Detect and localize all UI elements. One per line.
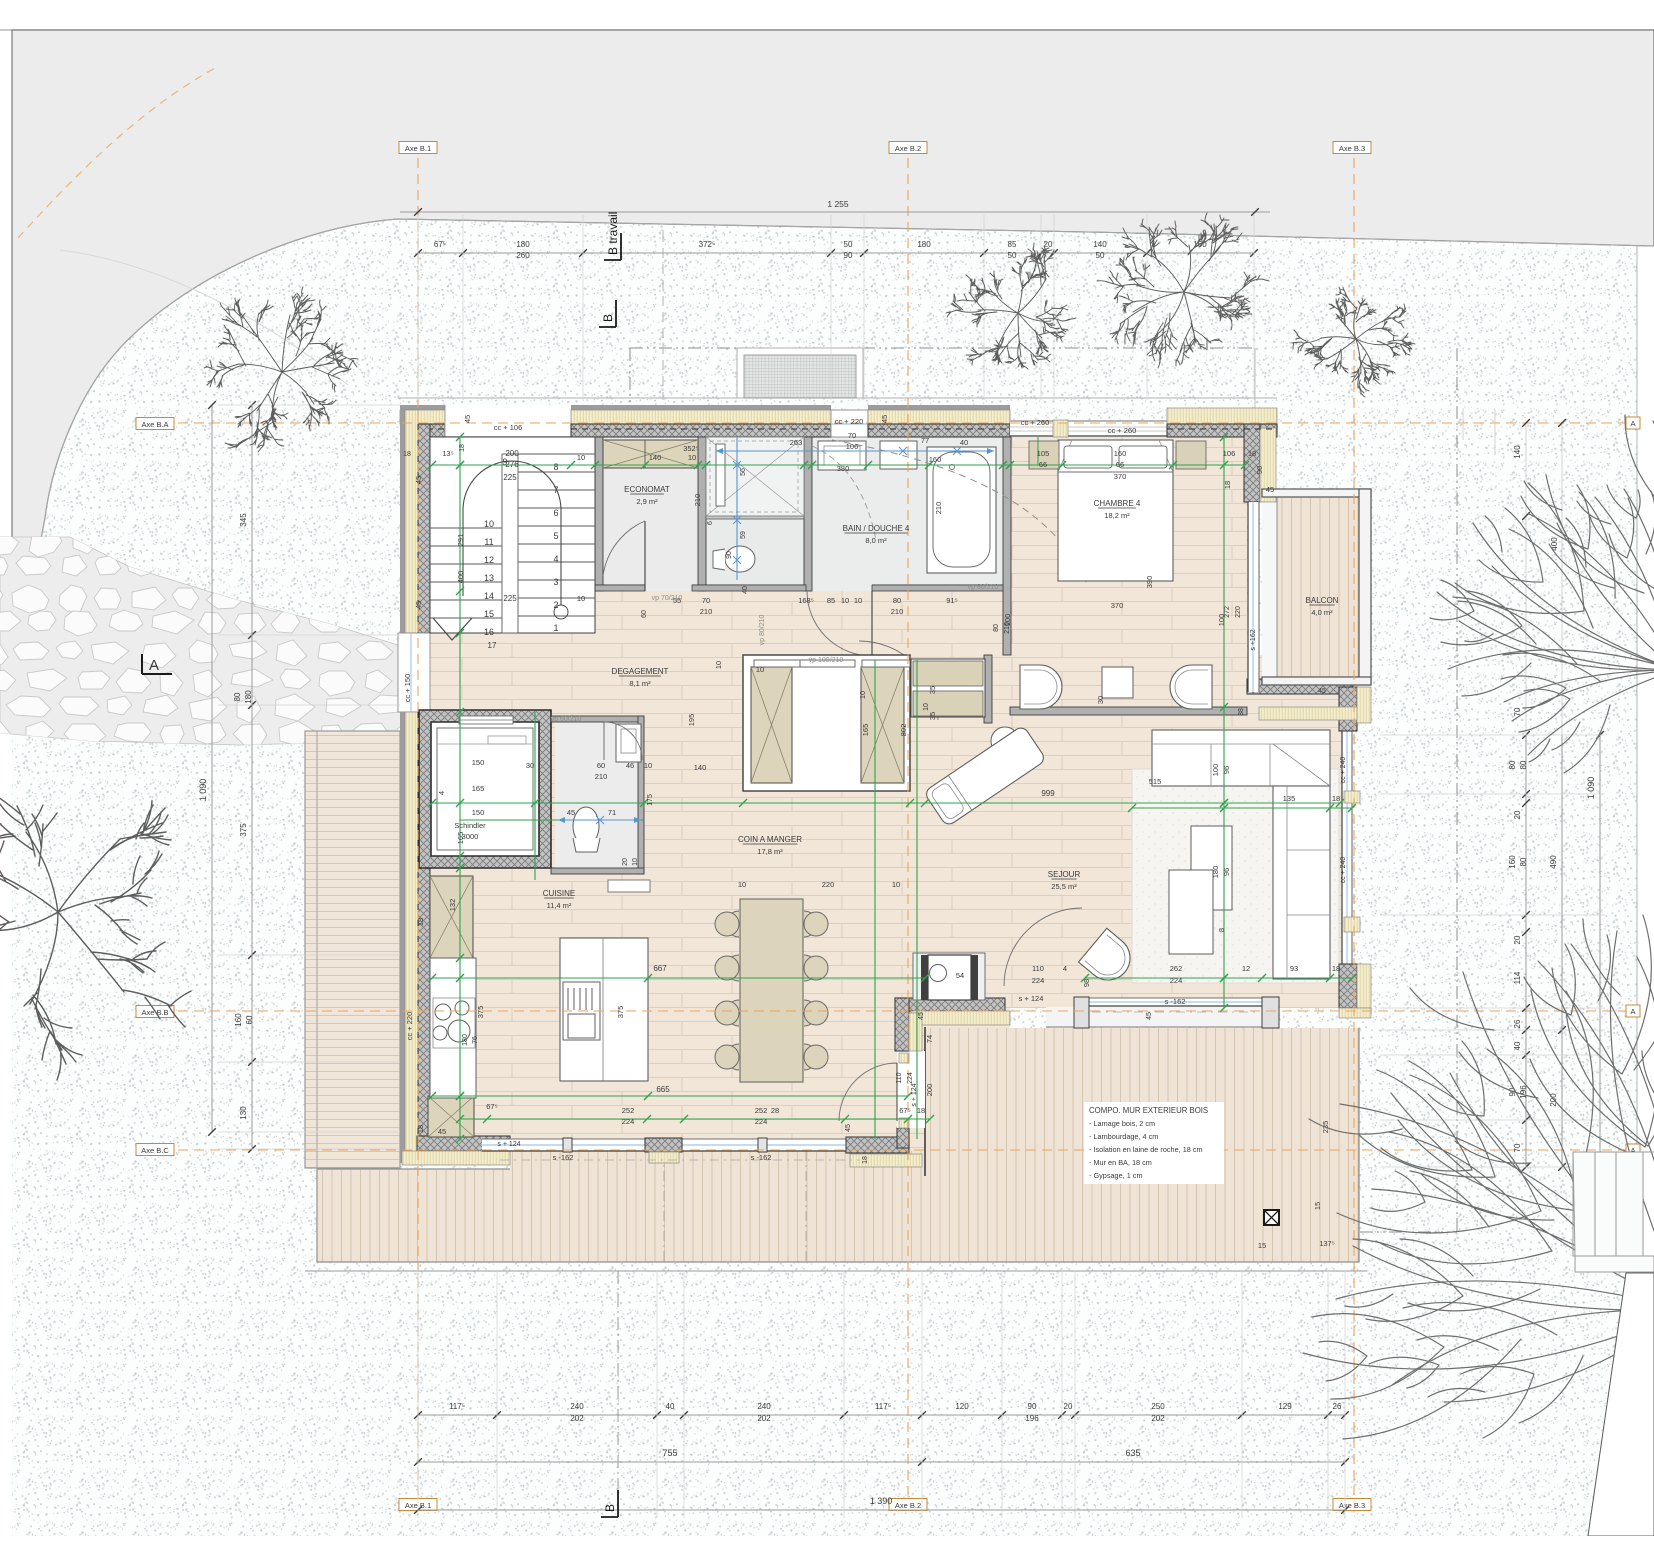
svg-text:210: 210 — [891, 607, 904, 616]
svg-text:98: 98 — [1082, 979, 1091, 987]
svg-text:160: 160 — [1508, 855, 1517, 869]
svg-text:8: 8 — [1217, 928, 1226, 932]
svg-text:10: 10 — [892, 880, 900, 889]
svg-text:Schindler: Schindler — [454, 821, 486, 830]
svg-text:Axe B.B: Axe B.B — [141, 1008, 168, 1017]
svg-text:15: 15 — [1258, 1241, 1266, 1250]
svg-text:4: 4 — [553, 554, 558, 564]
svg-text:Axe B.3: Axe B.3 — [1339, 144, 1365, 153]
svg-text:17,8 m²: 17,8 m² — [757, 847, 783, 856]
svg-text:18: 18 — [416, 1125, 425, 1133]
svg-text:74: 74 — [925, 1035, 934, 1043]
svg-text:45: 45 — [414, 601, 423, 609]
svg-text:370: 370 — [1114, 472, 1127, 481]
svg-text:50: 50 — [1008, 251, 1017, 260]
svg-text:66: 66 — [1039, 460, 1047, 469]
svg-text:18,2 m²: 18,2 m² — [1104, 511, 1130, 520]
svg-text:240: 240 — [570, 1402, 584, 1411]
svg-text:135: 135 — [1283, 794, 1296, 803]
svg-text:20: 20 — [1513, 935, 1522, 944]
svg-text:45: 45 — [1266, 485, 1274, 494]
svg-text:2,9 m²: 2,9 m² — [636, 497, 658, 506]
svg-text:291: 291 — [456, 534, 465, 547]
svg-text:262: 262 — [1170, 964, 1183, 973]
svg-text:2: 2 — [553, 600, 558, 610]
svg-text:180: 180 — [1211, 866, 1220, 879]
svg-text:224: 224 — [1032, 976, 1045, 985]
svg-text:20: 20 — [1064, 1402, 1073, 1411]
svg-text:60: 60 — [597, 761, 605, 770]
svg-text:3: 3 — [553, 577, 558, 587]
svg-text:26: 26 — [1513, 1019, 1522, 1028]
svg-text:40: 40 — [960, 438, 968, 447]
svg-text:375: 375 — [239, 823, 248, 837]
svg-text:117⁵: 117⁵ — [875, 1402, 891, 1411]
svg-text:10: 10 — [644, 761, 652, 770]
svg-text:Axe B.3: Axe B.3 — [1339, 1501, 1365, 1510]
svg-text:105: 105 — [1037, 449, 1050, 458]
svg-text:202: 202 — [757, 1414, 771, 1423]
svg-text:Axe B.C: Axe B.C — [141, 1146, 169, 1155]
svg-text:- Isolation en laine de roche,: - Isolation en laine de roche, 18 cm — [1089, 1145, 1203, 1154]
svg-text:46: 46 — [626, 761, 634, 770]
svg-text:110: 110 — [896, 1072, 903, 1083]
svg-text:140: 140 — [694, 763, 707, 772]
svg-text:10: 10 — [841, 596, 849, 605]
svg-text:- Lambourdage, 4 cm: - Lambourdage, 4 cm — [1089, 1132, 1158, 1141]
svg-text:80: 80 — [233, 692, 242, 701]
svg-text:14: 14 — [484, 591, 494, 601]
svg-text:60: 60 — [245, 1015, 254, 1024]
svg-text:10: 10 — [484, 519, 494, 529]
svg-text:45: 45 — [438, 1127, 446, 1136]
svg-text:45: 45 — [918, 1012, 925, 1020]
svg-text:76: 76 — [472, 1036, 479, 1044]
svg-text:11: 11 — [484, 537, 493, 547]
svg-text:70: 70 — [702, 596, 710, 605]
svg-text:45: 45 — [1318, 688, 1326, 695]
svg-text:220: 220 — [822, 880, 835, 889]
svg-text:SEJOUR: SEJOUR — [1048, 870, 1081, 879]
svg-text:8,1 m²: 8,1 m² — [629, 679, 651, 688]
svg-text:352⁵: 352⁵ — [683, 444, 699, 453]
svg-text:vp 80/210: vp 80/210 — [968, 584, 999, 591]
svg-text:202: 202 — [1151, 1414, 1165, 1423]
svg-text:91⁵: 91⁵ — [946, 596, 957, 605]
svg-text:cc + 220: cc + 220 — [405, 1012, 414, 1041]
svg-text:A: A — [1630, 1007, 1635, 1016]
svg-text:10: 10 — [756, 665, 764, 674]
svg-text:252: 252 — [755, 1106, 768, 1115]
svg-text:117⁵: 117⁵ — [449, 1402, 465, 1411]
svg-text:272: 272 — [1224, 606, 1231, 618]
svg-text:515: 515 — [1149, 777, 1162, 786]
svg-text:224: 224 — [907, 1072, 914, 1084]
svg-text:40: 40 — [742, 586, 749, 594]
svg-text:20: 20 — [1513, 810, 1522, 819]
svg-text:30: 30 — [526, 761, 534, 770]
svg-text:26: 26 — [1333, 1402, 1342, 1411]
svg-text:67⁵: 67⁵ — [899, 1106, 910, 1115]
svg-text:s + 124: s + 124 — [911, 1083, 918, 1106]
svg-text:345: 345 — [239, 513, 248, 527]
svg-text:96: 96 — [1222, 766, 1231, 774]
svg-text:Axe B.A: Axe B.A — [141, 420, 168, 429]
svg-text:6: 6 — [707, 521, 714, 525]
svg-text:195: 195 — [687, 714, 696, 727]
svg-text:635: 635 — [1125, 1448, 1140, 1458]
svg-text:17: 17 — [488, 641, 497, 650]
svg-text:93: 93 — [1290, 964, 1298, 973]
svg-text:380: 380 — [837, 464, 850, 473]
svg-text:A: A — [1630, 419, 1635, 428]
svg-text:CHAMBRE 4: CHAMBRE 4 — [1094, 499, 1141, 508]
svg-text:10: 10 — [632, 858, 639, 866]
svg-text:cc + 106: cc + 106 — [494, 423, 523, 432]
svg-text:370: 370 — [1111, 601, 1124, 610]
svg-text:45: 45 — [463, 415, 472, 423]
svg-text:120: 120 — [955, 1402, 969, 1411]
svg-text:10: 10 — [858, 691, 867, 699]
svg-text:25,5 m²: 25,5 m² — [1051, 882, 1077, 891]
svg-text:755: 755 — [662, 1448, 677, 1458]
svg-text:15: 15 — [484, 609, 494, 619]
svg-text:10: 10 — [738, 880, 746, 889]
svg-text:67⁵: 67⁵ — [434, 240, 446, 249]
svg-text:18: 18 — [1332, 964, 1340, 973]
svg-text:cc + 150: cc + 150 — [403, 674, 412, 703]
svg-text:cc + 240: cc + 240 — [1340, 757, 1347, 784]
svg-text:665: 665 — [656, 1085, 670, 1094]
svg-text:18: 18 — [1223, 481, 1232, 489]
svg-text:3000: 3000 — [462, 832, 479, 841]
svg-text:10: 10 — [688, 453, 696, 462]
svg-text:90: 90 — [844, 251, 853, 260]
svg-text:45: 45 — [845, 1124, 852, 1132]
svg-text:260: 260 — [516, 251, 530, 260]
svg-text:4: 4 — [437, 791, 446, 795]
svg-text:196: 196 — [1519, 1085, 1528, 1099]
svg-text:59: 59 — [740, 531, 747, 539]
svg-text:210: 210 — [1004, 622, 1011, 634]
svg-text:80: 80 — [1519, 760, 1528, 769]
svg-text:12: 12 — [1242, 964, 1250, 973]
svg-text:90: 90 — [1028, 1402, 1037, 1411]
svg-text:vp 80/210: vp 80/210 — [759, 615, 766, 646]
svg-text:60: 60 — [641, 610, 648, 618]
svg-text:s + 124: s + 124 — [1019, 994, 1044, 1003]
svg-text:224: 224 — [622, 1117, 635, 1126]
svg-text:B: B — [601, 314, 615, 322]
svg-text:45: 45 — [1146, 1012, 1153, 1020]
svg-text:18: 18 — [1332, 794, 1340, 803]
svg-text:160: 160 — [234, 1013, 243, 1027]
svg-text:85: 85 — [827, 596, 835, 605]
svg-text:224: 224 — [1170, 976, 1183, 985]
svg-text:200: 200 — [505, 449, 519, 458]
svg-text:B: B — [603, 1504, 617, 1512]
svg-text:10: 10 — [577, 453, 585, 462]
svg-text:- Gypsage, 1 cm: - Gypsage, 1 cm — [1089, 1171, 1143, 1180]
svg-text:106: 106 — [846, 442, 859, 451]
svg-text:400: 400 — [456, 571, 465, 584]
svg-text:165: 165 — [861, 724, 870, 737]
svg-text:100: 100 — [1211, 764, 1220, 777]
svg-text:490: 490 — [1549, 855, 1558, 869]
svg-text:224: 224 — [755, 1117, 768, 1126]
svg-text:35: 35 — [928, 712, 937, 720]
svg-text:18: 18 — [862, 1156, 869, 1164]
svg-text:210: 210 — [700, 607, 713, 616]
svg-text:4: 4 — [1063, 964, 1067, 973]
svg-text:20: 20 — [622, 858, 629, 866]
svg-text:80: 80 — [993, 624, 1000, 632]
svg-text:15: 15 — [1313, 1202, 1322, 1210]
svg-text:240: 240 — [757, 1402, 771, 1411]
svg-text:165: 165 — [472, 784, 485, 793]
svg-text:129: 129 — [1278, 1402, 1292, 1411]
svg-text:16: 16 — [484, 627, 494, 637]
svg-text:200: 200 — [925, 1084, 934, 1097]
svg-text:COIN A MANGER: COIN A MANGER — [738, 835, 802, 844]
svg-text:140: 140 — [649, 453, 662, 462]
svg-text:BALCON: BALCON — [1306, 596, 1339, 605]
svg-text:cc + 220: cc + 220 — [835, 417, 864, 426]
svg-text:106: 106 — [1223, 449, 1236, 458]
svg-text:45: 45 — [880, 415, 889, 423]
svg-text:40: 40 — [666, 1402, 675, 1411]
svg-text:11,4 m²: 11,4 m² — [547, 901, 572, 910]
svg-text:140: 140 — [1093, 240, 1107, 249]
svg-text:8,0 m²: 8,0 m² — [865, 536, 887, 545]
svg-text:BAIN / DOUCHE 4: BAIN / DOUCHE 4 — [843, 524, 910, 533]
svg-text:667: 667 — [653, 964, 667, 973]
svg-text:202: 202 — [570, 1414, 584, 1423]
svg-text:77: 77 — [921, 436, 929, 445]
svg-text:13⁵: 13⁵ — [442, 449, 453, 458]
svg-text:s + 124: s + 124 — [497, 1141, 520, 1148]
svg-text:10: 10 — [854, 596, 862, 605]
svg-text:45: 45 — [414, 476, 423, 484]
svg-text:B travail: B travail — [606, 212, 620, 255]
svg-text:8: 8 — [553, 462, 558, 472]
svg-text:5: 5 — [553, 531, 558, 541]
svg-text:160: 160 — [1114, 449, 1127, 458]
svg-text:252: 252 — [622, 1106, 635, 1115]
svg-text:A: A — [149, 657, 159, 674]
svg-text:80: 80 — [1508, 760, 1517, 769]
svg-text:54: 54 — [956, 971, 964, 980]
svg-text:ECONOMAT: ECONOMAT — [624, 485, 670, 494]
svg-text:210: 210 — [595, 772, 608, 781]
svg-text:28: 28 — [771, 1106, 779, 1115]
svg-text:85: 85 — [1008, 240, 1017, 249]
svg-text:s -162: s -162 — [1165, 997, 1186, 1006]
svg-text:Axe B.1: Axe B.1 — [405, 144, 431, 153]
svg-text:- Mur en BA, 18 cm: - Mur en BA, 18 cm — [1089, 1158, 1152, 1167]
svg-text:vp 100/210: vp 100/210 — [809, 657, 844, 664]
svg-text:18: 18 — [917, 1106, 925, 1115]
svg-text:70: 70 — [848, 431, 856, 440]
svg-text:220: 220 — [1235, 606, 1242, 618]
svg-text:390: 390 — [1145, 576, 1154, 589]
svg-text:168⁵: 168⁵ — [798, 596, 814, 605]
svg-text:s -162: s -162 — [751, 1153, 772, 1162]
svg-text:cc + 260: cc + 260 — [1021, 418, 1050, 427]
svg-text:DEGAGEMENT: DEGAGEMENT — [612, 667, 669, 676]
svg-text:180: 180 — [462, 1034, 469, 1046]
svg-text:4,0 m²: 4,0 m² — [1311, 608, 1333, 617]
svg-text:CUISINE: CUISINE — [543, 889, 575, 898]
svg-text:18: 18 — [403, 451, 411, 458]
svg-text:372⁵: 372⁵ — [699, 240, 716, 249]
svg-text:110: 110 — [1032, 964, 1044, 973]
svg-text:45: 45 — [567, 808, 575, 817]
svg-text:66: 66 — [1116, 460, 1124, 469]
svg-text:18: 18 — [416, 918, 425, 926]
svg-text:150: 150 — [472, 758, 485, 767]
svg-text:114: 114 — [1513, 971, 1522, 984]
svg-text:35: 35 — [928, 686, 937, 694]
svg-text:70: 70 — [1513, 1143, 1522, 1152]
svg-text:10: 10 — [577, 594, 585, 603]
svg-text:10: 10 — [923, 703, 930, 711]
svg-text:18: 18 — [1248, 449, 1256, 458]
svg-text:1 090: 1 090 — [1586, 777, 1596, 800]
svg-text:225: 225 — [503, 594, 517, 603]
svg-text:96: 96 — [1222, 868, 1231, 876]
svg-text:210: 210 — [934, 502, 943, 515]
svg-text:263: 263 — [790, 438, 803, 447]
svg-text:225: 225 — [503, 473, 517, 482]
svg-text:10: 10 — [714, 661, 723, 669]
svg-text:196: 196 — [1025, 1414, 1039, 1423]
svg-text:90: 90 — [1255, 466, 1264, 474]
svg-text:6: 6 — [553, 508, 558, 518]
svg-text:210: 210 — [693, 494, 702, 507]
svg-text:130: 130 — [239, 1106, 248, 1120]
svg-text:140: 140 — [1513, 445, 1522, 459]
svg-text:Axe B.2: Axe B.2 — [895, 144, 921, 153]
svg-text:999: 999 — [1041, 789, 1055, 798]
svg-text:180: 180 — [917, 240, 931, 249]
svg-text:1 255: 1 255 — [827, 199, 849, 209]
svg-text:COMPO. MUR EXTERIEUR BOIS: COMPO. MUR EXTERIEUR BOIS — [1089, 1106, 1208, 1115]
svg-text:12: 12 — [484, 555, 494, 565]
svg-text:132: 132 — [448, 899, 457, 912]
svg-text:cc + 240: cc + 240 — [1340, 857, 1347, 884]
svg-text:50: 50 — [1096, 251, 1105, 260]
svg-text:38: 38 — [1238, 708, 1245, 716]
svg-text:- Lamage bois, 2 cm: - Lamage bois, 2 cm — [1089, 1119, 1155, 1128]
svg-text:71: 71 — [608, 808, 616, 817]
svg-text:150: 150 — [472, 808, 485, 817]
svg-text:175: 175 — [647, 794, 654, 806]
svg-text:13: 13 — [484, 573, 494, 583]
svg-text:137⁵: 137⁵ — [1319, 1239, 1335, 1248]
svg-text:vp 60/210: vp 60/210 — [551, 716, 582, 723]
svg-text:160: 160 — [929, 455, 942, 464]
svg-text:90: 90 — [726, 551, 733, 559]
svg-text:18: 18 — [459, 444, 466, 452]
svg-text:7: 7 — [553, 485, 558, 495]
svg-text:80: 80 — [893, 596, 901, 605]
svg-text:1: 1 — [553, 623, 558, 633]
svg-text:cc + 260: cc + 260 — [1108, 426, 1137, 435]
svg-text:276: 276 — [505, 460, 519, 469]
svg-text:50: 50 — [844, 240, 853, 249]
svg-text:375: 375 — [476, 1006, 485, 1019]
svg-text:180: 180 — [516, 240, 530, 249]
svg-text:80: 80 — [1519, 857, 1528, 866]
svg-text:56: 56 — [740, 468, 747, 476]
svg-text:40: 40 — [1513, 1041, 1522, 1050]
svg-text:30: 30 — [1096, 696, 1105, 704]
svg-text:1 390: 1 390 — [870, 1496, 893, 1506]
svg-text:Axe B.2: Axe B.2 — [895, 1501, 921, 1510]
svg-text:s +162: s +162 — [1250, 629, 1257, 650]
svg-text:67⁵: 67⁵ — [486, 1102, 497, 1111]
svg-text:vp 70/210: vp 70/210 — [652, 595, 683, 602]
svg-text:s -162: s -162 — [553, 1153, 574, 1162]
svg-text:180: 180 — [244, 690, 253, 704]
svg-text:802: 802 — [899, 724, 908, 737]
svg-text:375: 375 — [616, 1006, 625, 1019]
svg-text:1 090: 1 090 — [198, 779, 208, 802]
svg-text:250: 250 — [1151, 1402, 1165, 1411]
